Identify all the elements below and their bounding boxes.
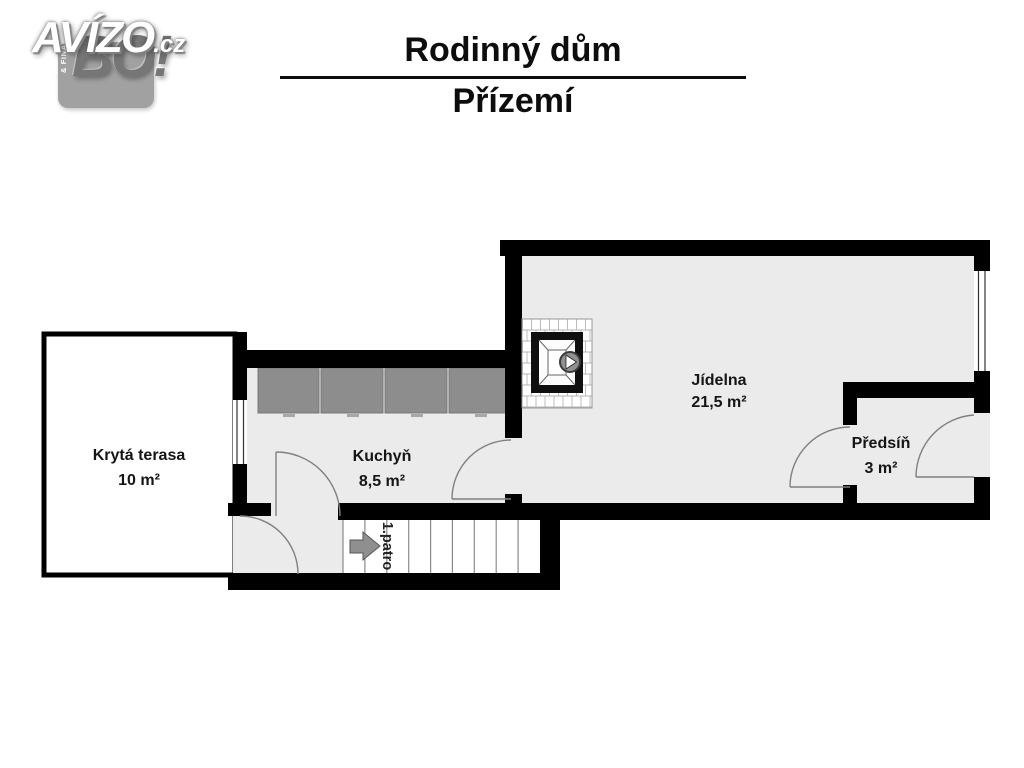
room-label-dining: Jídelna 21,5 m² <box>691 370 746 414</box>
room-label-kitchen: Kuchyň 8,5 m² <box>353 444 412 494</box>
dining-area: 21,5 m² <box>691 394 746 411</box>
dining-window <box>974 268 990 374</box>
fireplace-icon <box>522 319 592 408</box>
hallway-name: Předsíň <box>852 435 911 452</box>
kitchen-area: 8,5 m² <box>359 473 405 490</box>
kitchen-counter <box>258 368 512 417</box>
kitchen-name: Kuchyň <box>353 448 412 465</box>
kitchen-window <box>233 397 247 467</box>
floorplan-svg <box>0 0 1024 768</box>
terrace-area: 10 m² <box>118 472 160 489</box>
room-label-terrace: Krytá terasa 10 m² <box>93 443 186 493</box>
stairs-direction-label: 1.patro <box>379 522 395 570</box>
terrace-name: Krytá terasa <box>93 447 186 464</box>
room-label-hallway: Předsíň 3 m² <box>852 431 911 481</box>
page: REALITY & FINANCE BO! AVÍZO.cz Rodinný d… <box>0 0 1024 768</box>
dining-name: Jídelna <box>691 372 746 389</box>
hallway-area: 3 m² <box>865 460 898 477</box>
